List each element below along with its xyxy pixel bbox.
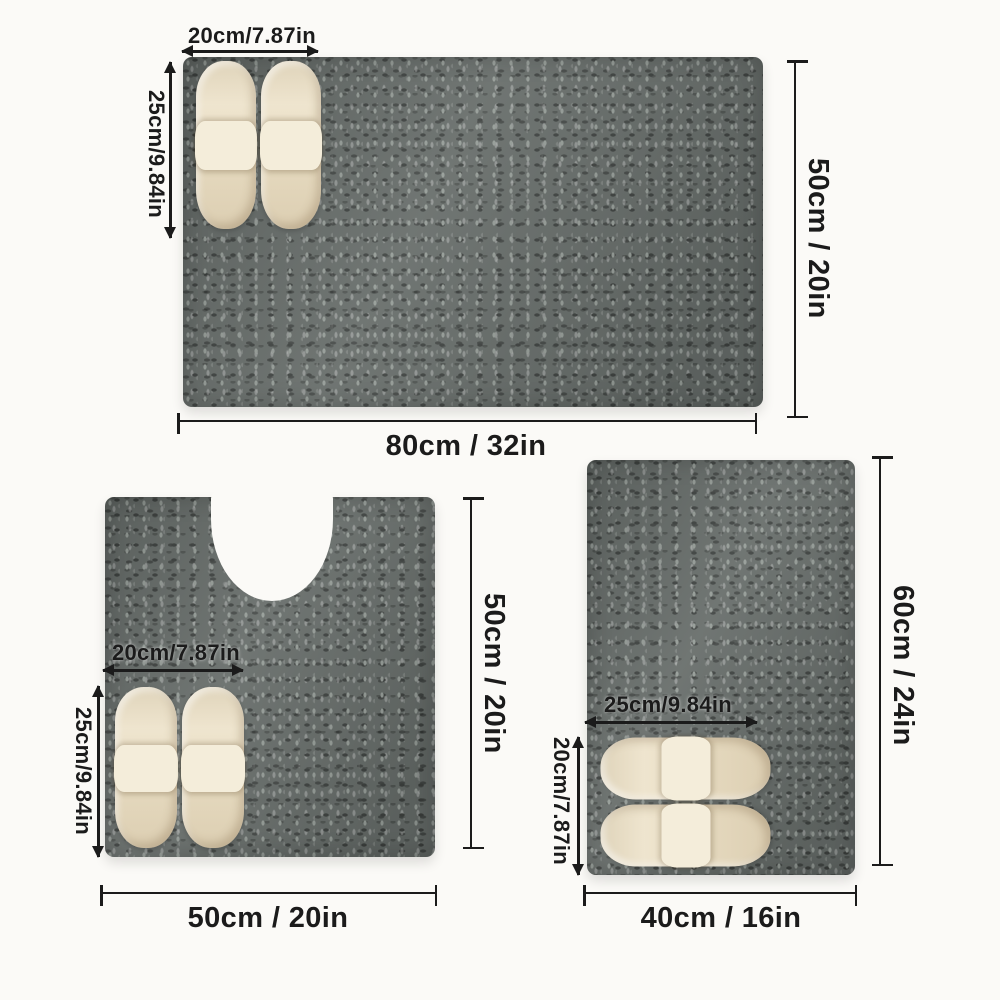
small-slipper-height-arrow: [577, 737, 580, 875]
slipper-right: [261, 61, 321, 229]
top-mat-height-line: [794, 60, 796, 418]
slipper-pair: [601, 738, 771, 867]
top-mat-width-label: 80cm / 32in: [386, 430, 547, 463]
contour-slipper-width-label: 20cm/7.87in: [112, 640, 240, 666]
small-slipper-height-label: 20cm/7.87in: [548, 737, 574, 865]
slipper-right: [182, 687, 244, 848]
small-mat-width-line: [583, 892, 857, 894]
top-slipper-width-arrow: [182, 50, 318, 53]
small-slipper-width-arrow: [585, 721, 757, 724]
slipper-left: [196, 61, 256, 229]
top-mat-height-label: 50cm / 20in: [801, 158, 834, 319]
top-slipper-width-label: 20cm/7.87in: [188, 23, 316, 49]
contour-mat-height-line: [470, 497, 472, 849]
contour-mat-notch: [211, 489, 333, 601]
contour-slipper-height-label: 25cm/9.84in: [70, 707, 96, 835]
small-mat-height-label: 60cm / 24in: [886, 585, 919, 746]
contour-mat-width-label: 50cm / 20in: [188, 902, 349, 935]
slipper-pair: [115, 687, 244, 848]
slipper-right: [601, 738, 771, 800]
contour-slipper-width-arrow: [103, 669, 243, 672]
slipper-left: [601, 805, 771, 867]
small-mat-width-label: 40cm / 16in: [641, 902, 802, 935]
small-mat-height-line: [879, 456, 881, 866]
contour-mat-height-label: 50cm / 20in: [477, 593, 510, 754]
top-mat-width-line: [177, 420, 757, 422]
small-slipper-width-label: 25cm/9.84in: [604, 692, 732, 718]
slipper-pair: [196, 61, 321, 229]
top-slipper-height-label: 25cm/9.84in: [143, 90, 169, 218]
bath-mat-dimension-diagram: 20cm/7.87in 25cm/9.84in 50cm / 20in 80cm…: [0, 0, 1000, 1000]
slipper-left: [115, 687, 177, 848]
contour-slipper-height-arrow: [97, 686, 100, 857]
top-slipper-height-arrow: [169, 62, 172, 238]
contour-mat-width-line: [100, 892, 437, 894]
